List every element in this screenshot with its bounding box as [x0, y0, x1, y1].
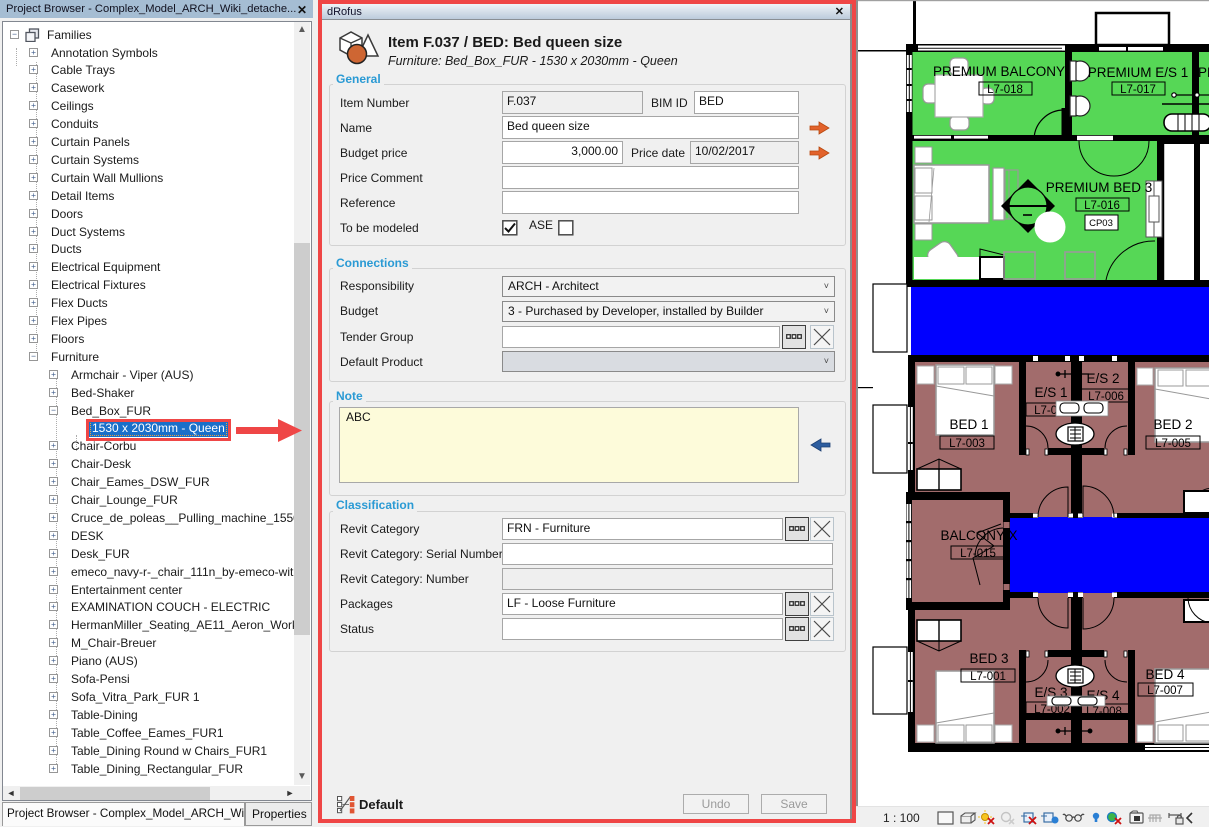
svg-text:PREMIUM E/S 1: PREMIUM E/S 1 [1088, 65, 1189, 80]
svg-text:L7-001: L7-001 [970, 671, 1006, 683]
svg-text:BED 1: BED 1 [949, 417, 988, 432]
svg-text:E/S 2: E/S 2 [1086, 371, 1119, 386]
svg-text:PR: PR [1198, 65, 1209, 80]
svg-text:BED 2: BED 2 [1153, 417, 1192, 432]
svg-text:L7-015: L7-015 [960, 548, 996, 560]
svg-text:L7-016: L7-016 [1084, 200, 1120, 212]
svg-text:L7-008: L7-008 [1086, 706, 1122, 718]
svg-text:L7-003: L7-003 [949, 438, 985, 450]
svg-text:L7-007: L7-007 [1147, 685, 1183, 697]
svg-text:PREMIUM BALCONY: PREMIUM BALCONY [933, 64, 1065, 79]
svg-text:BED 4: BED 4 [1145, 667, 1185, 682]
svg-text:CP03: CP03 [1089, 218, 1113, 229]
svg-text:E/S 1: E/S 1 [1034, 385, 1067, 400]
svg-text:BALCONY X: BALCONY X [940, 528, 1017, 543]
svg-text:L7-005: L7-005 [1155, 438, 1191, 450]
svg-text:PREMIUM BED 3: PREMIUM BED 3 [1046, 180, 1153, 195]
svg-text:L7-017: L7-017 [1120, 84, 1156, 96]
svg-text:BED 3: BED 3 [969, 651, 1008, 666]
svg-text:L7-018: L7-018 [987, 84, 1023, 96]
